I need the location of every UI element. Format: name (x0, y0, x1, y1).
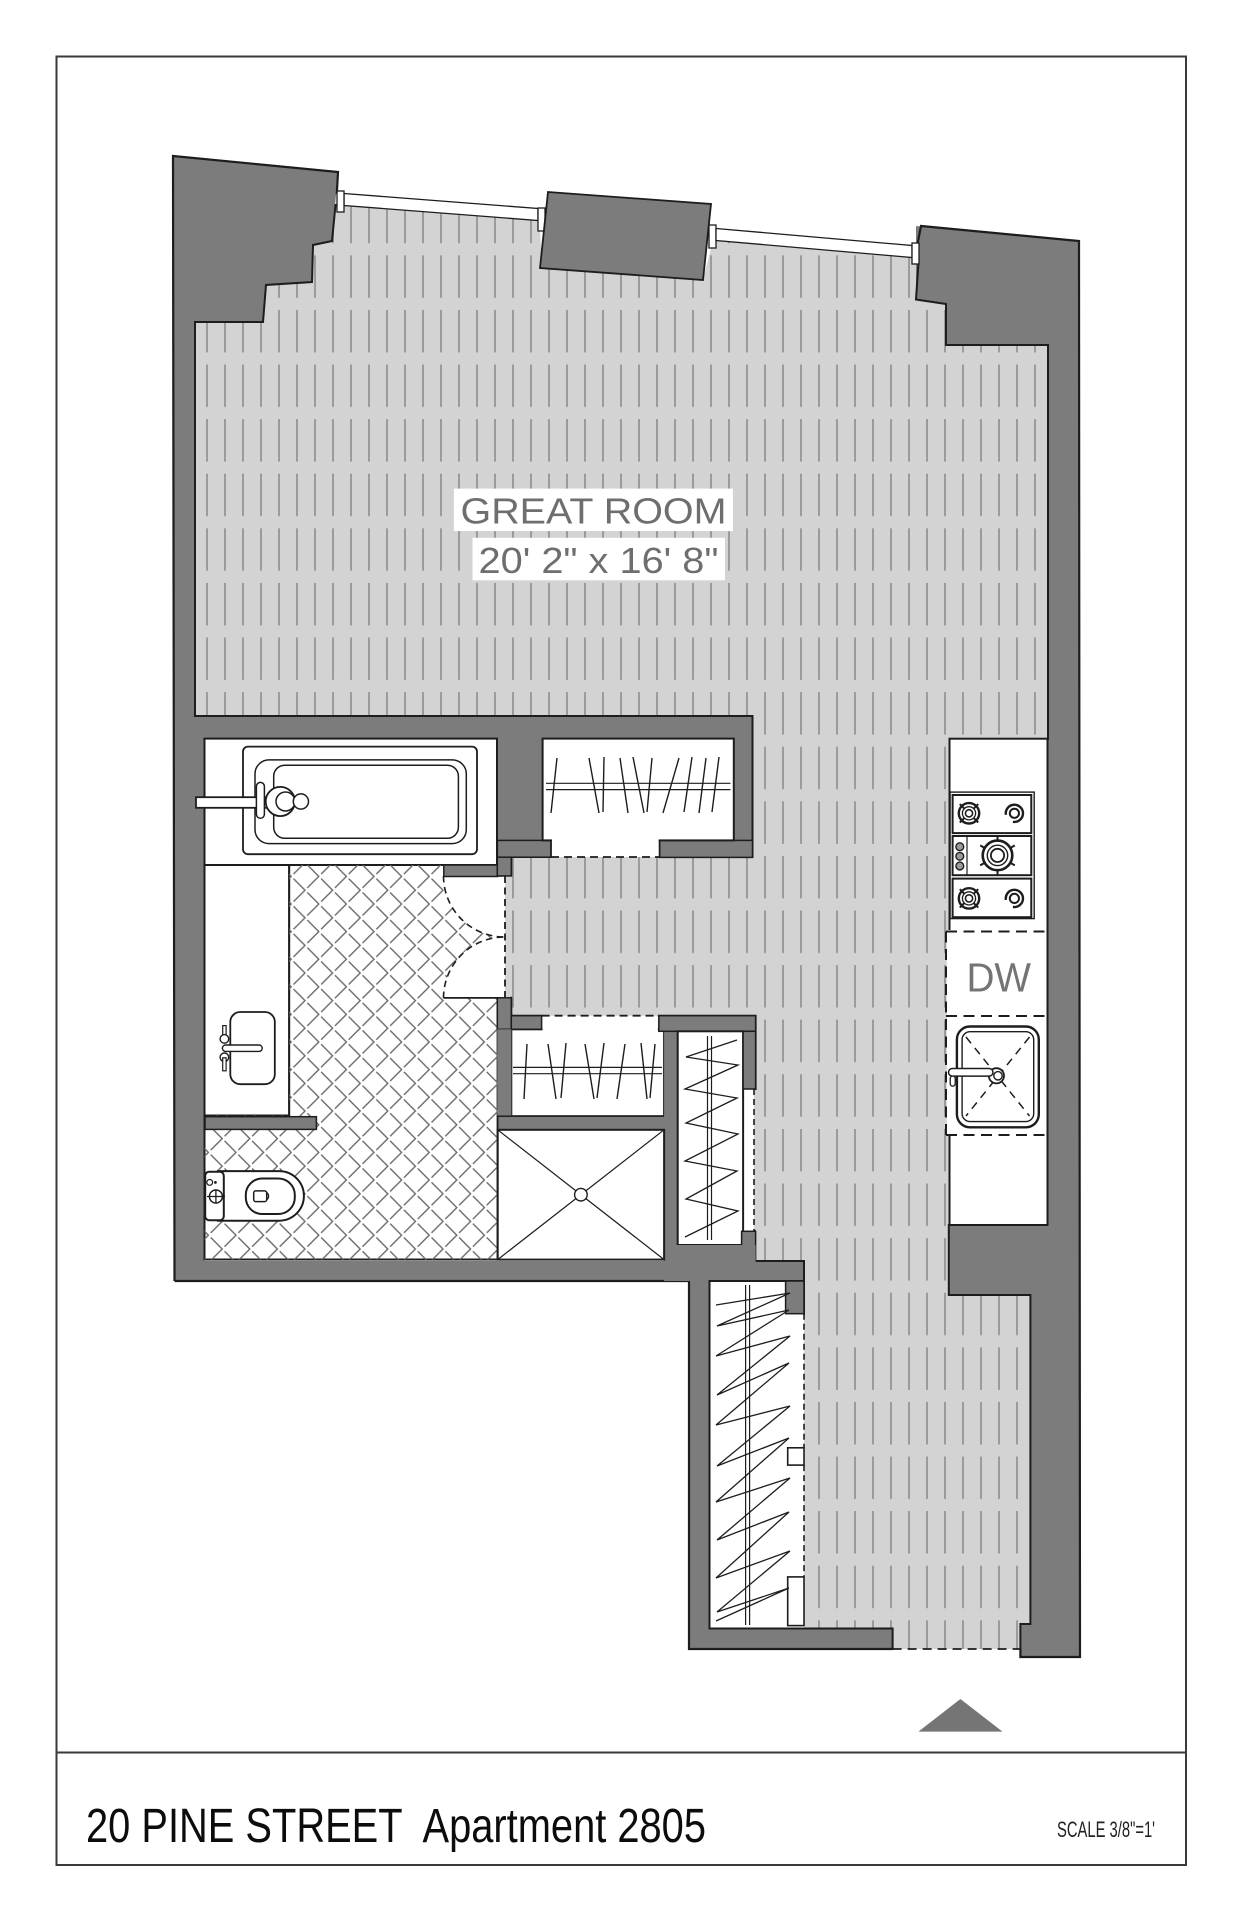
svg-text:20' 2" x 16' 8": 20' 2" x 16' 8" (479, 540, 719, 581)
svg-text:SCALE 3/8"=1': SCALE 3/8"=1' (1057, 1817, 1155, 1842)
svg-text:DW: DW (966, 955, 1031, 1001)
svg-text:20 PINE STREET Apartment 2805: 20 PINE STREET Apartment 2805 (86, 1799, 706, 1853)
svg-text:GREAT ROOM: GREAT ROOM (461, 491, 727, 532)
